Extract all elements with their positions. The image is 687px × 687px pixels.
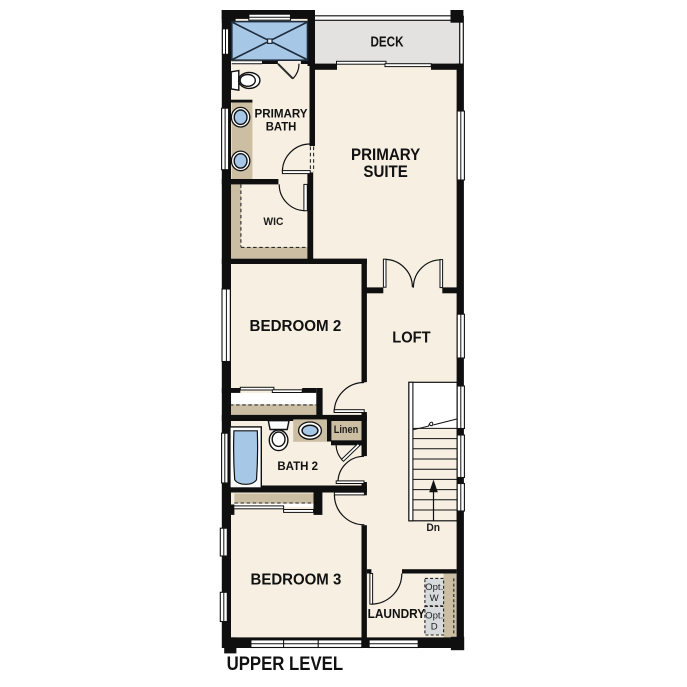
svg-text:SUITE: SUITE [363, 163, 408, 181]
svg-text:LOFT: LOFT [392, 329, 431, 346]
svg-text:BEDROOM 2: BEDROOM 2 [250, 318, 342, 335]
svg-text:PRIMARY: PRIMARY [255, 106, 308, 120]
svg-text:Opt.: Opt. [425, 582, 443, 593]
svg-text:DECK: DECK [371, 34, 405, 50]
svg-text:PRIMARY: PRIMARY [351, 146, 420, 164]
svg-text:WIC: WIC [263, 216, 283, 228]
svg-text:BATH 2: BATH 2 [277, 459, 318, 473]
svg-text:UPPER LEVEL: UPPER LEVEL [227, 654, 344, 675]
svg-text:Opt.: Opt. [425, 611, 443, 622]
svg-text:Dn: Dn [426, 522, 440, 534]
svg-text:Linen: Linen [334, 424, 359, 436]
svg-text:BEDROOM 3: BEDROOM 3 [251, 572, 342, 589]
svg-text:D: D [431, 622, 438, 633]
svg-text:LAUNDRY: LAUNDRY [368, 607, 426, 621]
svg-text:BATH: BATH [266, 120, 297, 134]
svg-text:W: W [430, 593, 440, 604]
